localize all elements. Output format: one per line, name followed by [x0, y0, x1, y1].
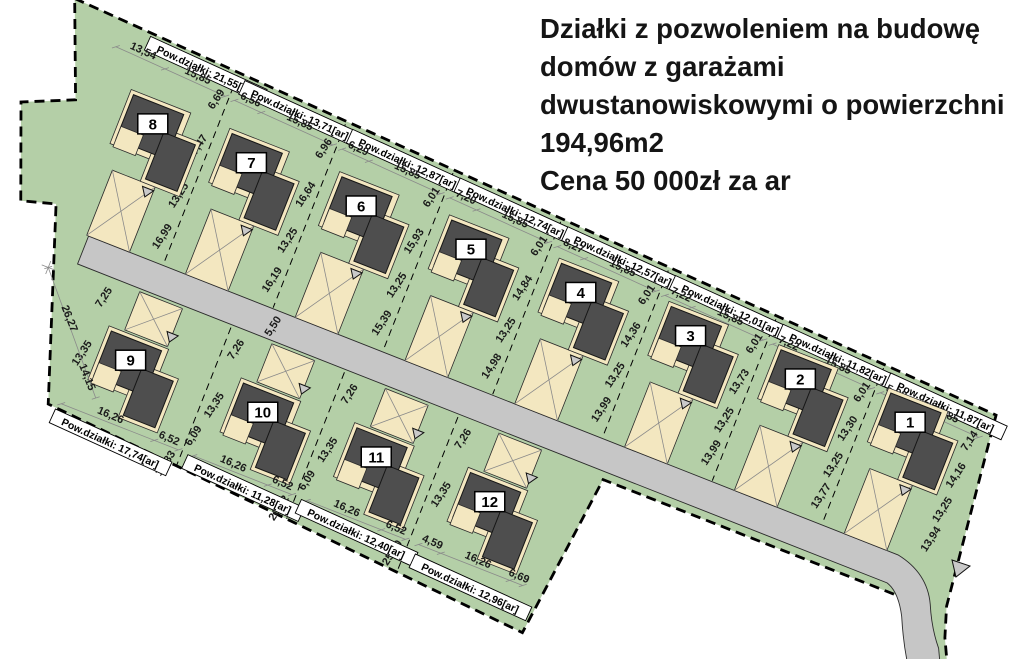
plot-number: 10 [254, 405, 271, 422]
offer-line: 194,96m2 [540, 124, 1020, 162]
offer-line: domów z garażami [540, 48, 1020, 86]
plot-4-number-label: 4 [566, 282, 596, 302]
plot-10-number-label: 10 [248, 402, 278, 422]
plot-5-number-label: 5 [456, 239, 486, 259]
plot-map-listing-image: 5,50Pow.działki: 21,55[ar]13,5415,856,69… [0, 0, 1024, 659]
plot-9-number-label: 9 [116, 350, 146, 370]
plot-12-number-label: 12 [475, 492, 505, 512]
plot-number: 5 [467, 242, 475, 259]
plot-8-number-label: 8 [138, 114, 168, 134]
plot-number: 8 [149, 116, 157, 133]
plot-number: 6 [357, 198, 365, 215]
plot-number: 4 [577, 285, 586, 302]
plot-number: 7 [247, 155, 255, 172]
plot-number: 9 [126, 353, 134, 370]
plot-1-number-label: 1 [895, 412, 925, 432]
plot-3-number-label: 3 [676, 326, 706, 346]
offer-line: Cena 50 000zł za ar [540, 162, 1020, 200]
plot-2-number-label: 2 [785, 369, 815, 389]
plot-11-number-label: 11 [361, 447, 391, 467]
plot-number: 11 [368, 449, 384, 466]
offer-text: Działki z pozwoleniem na budowę domów z … [540, 10, 1020, 200]
plot-number: 1 [906, 415, 914, 432]
offer-line: dwustanowiskowymi o powierzchni [540, 86, 1020, 124]
plot-number: 2 [796, 371, 804, 388]
plot-number: 12 [481, 494, 498, 511]
plot-7-number-label: 7 [236, 153, 266, 173]
plot-number: 3 [686, 328, 694, 345]
plot-6-number-label: 6 [346, 196, 376, 216]
offer-line: Działki z pozwoleniem na budowę [540, 10, 1020, 48]
